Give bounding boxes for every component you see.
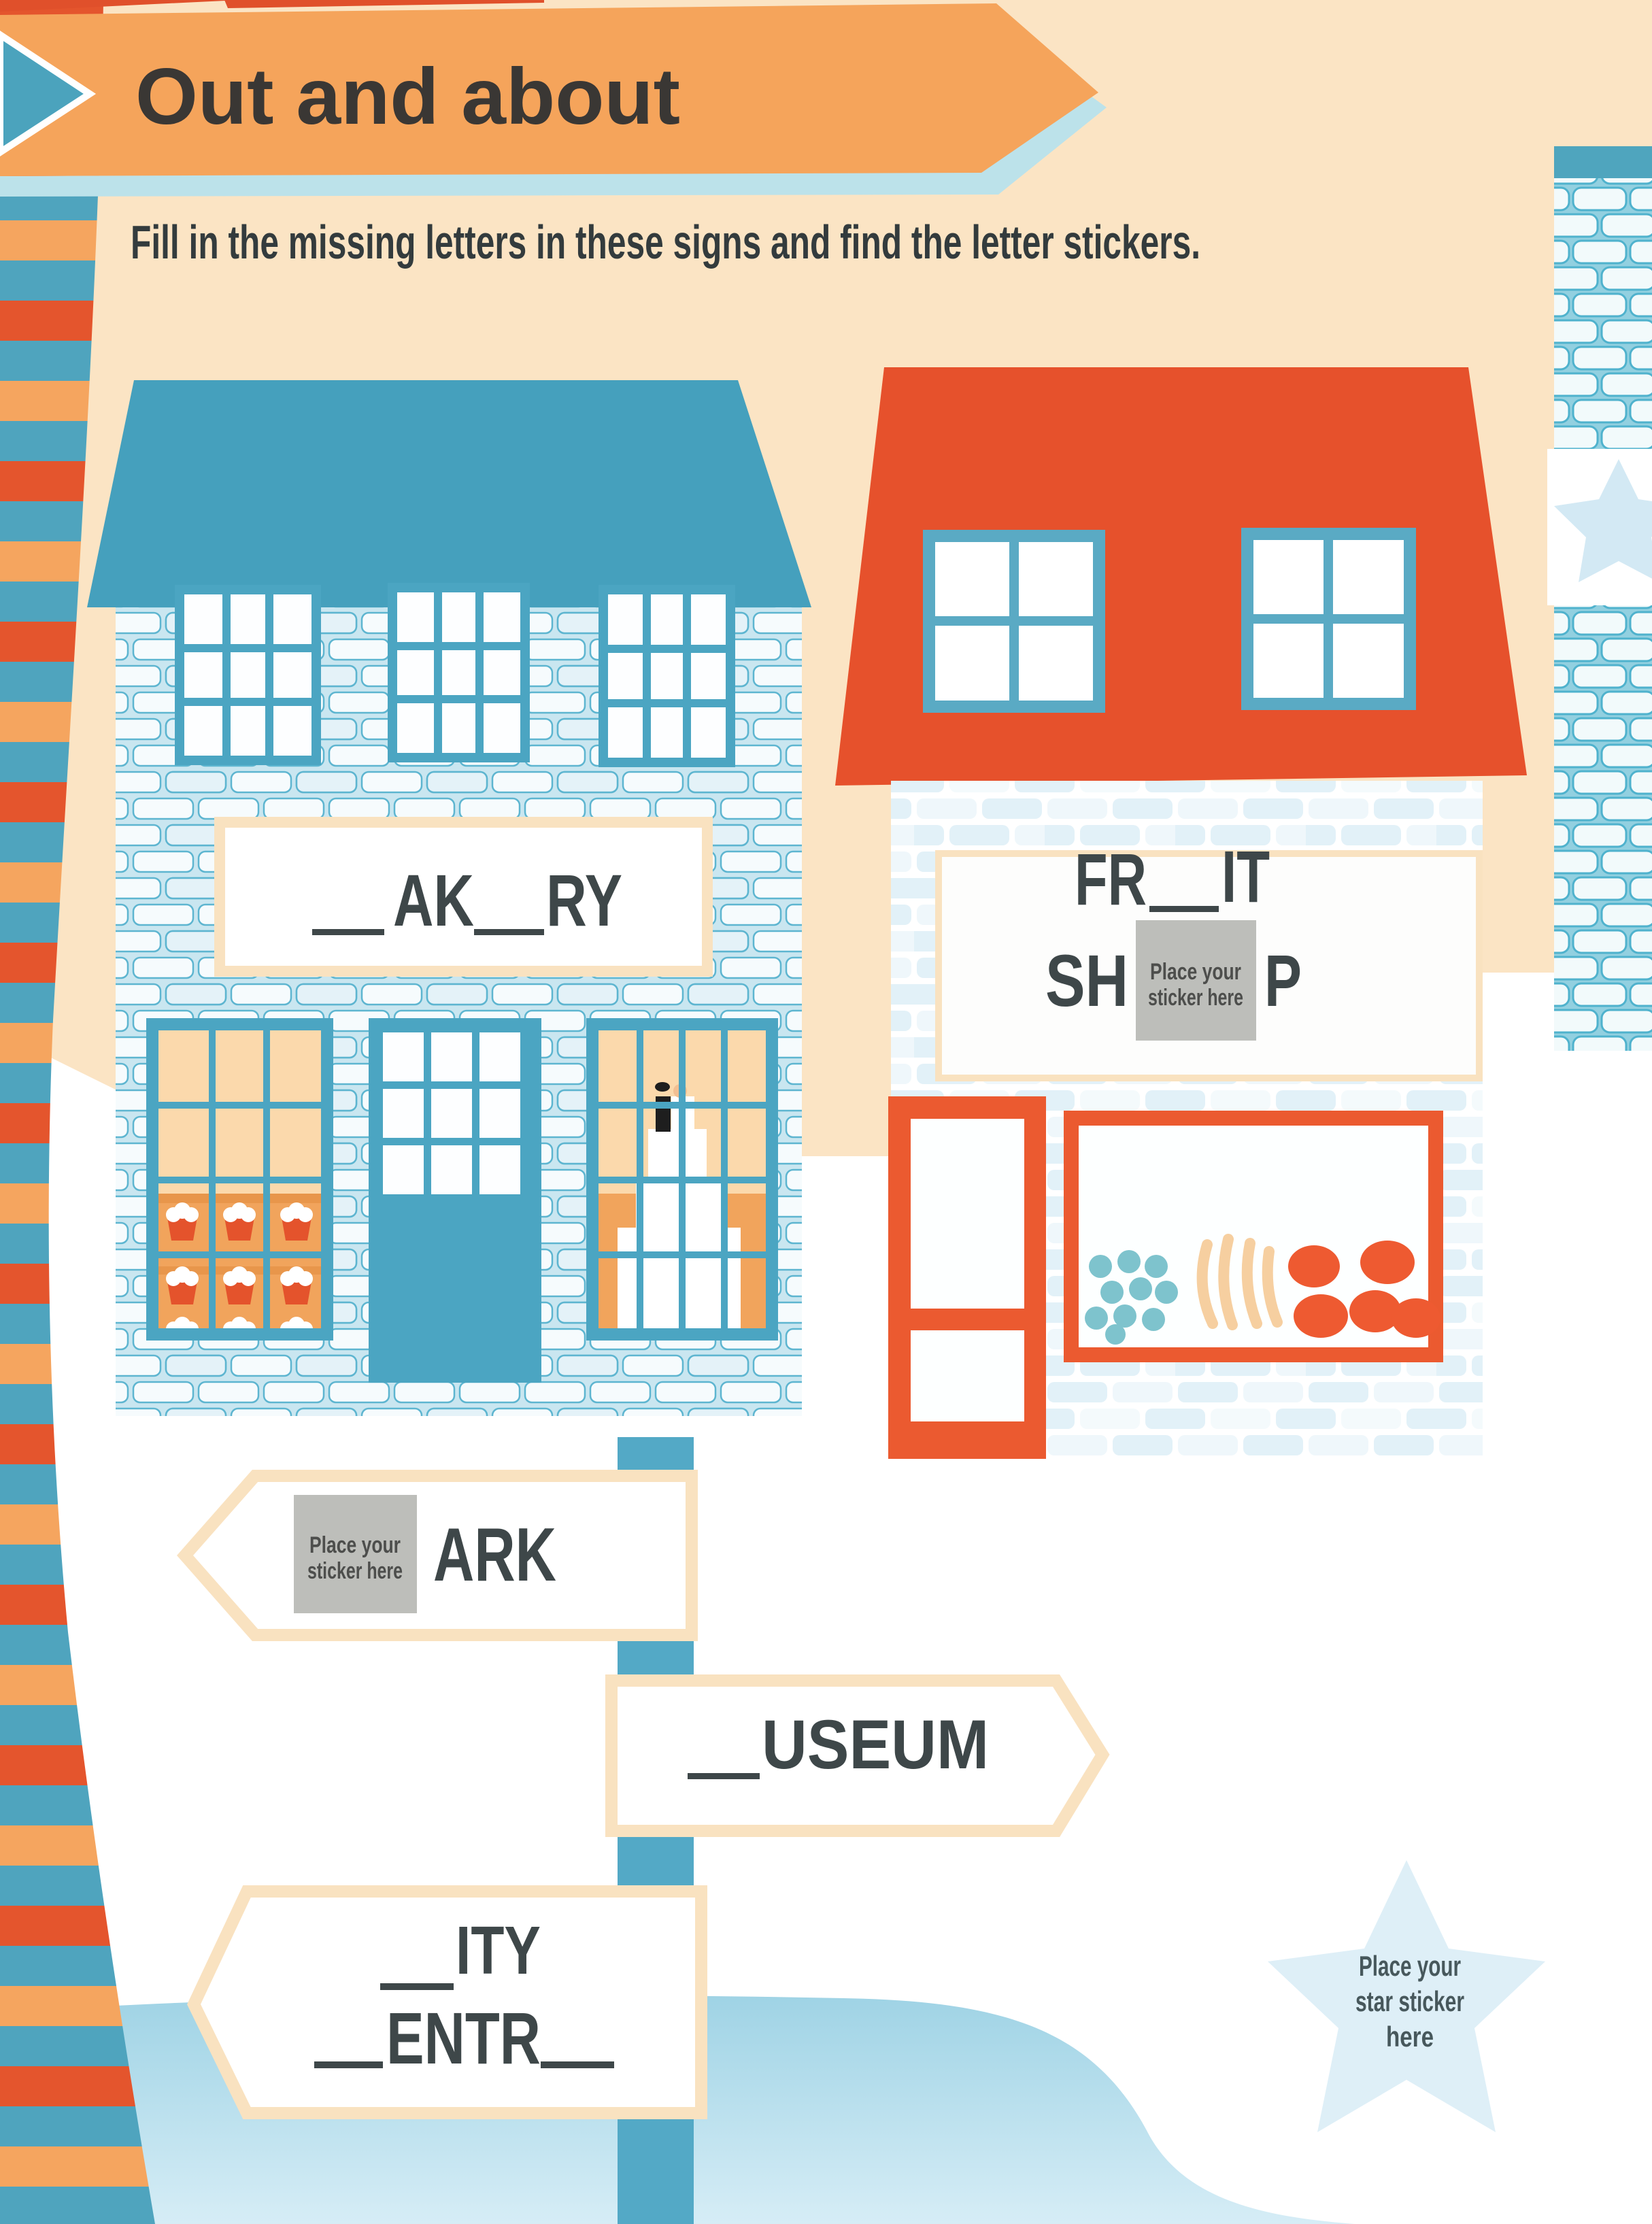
svg-text:Out and about: Out and about [135, 52, 680, 141]
svg-text:Place your: Place your [309, 1532, 401, 1558]
svg-text:ITY: ITY [456, 1913, 541, 1989]
svg-text:Place your: Place your [1150, 959, 1241, 985]
svg-text:sticker here: sticker here [307, 1558, 403, 1584]
svg-text:FR: FR [1075, 838, 1147, 920]
svg-text:P: P [1264, 939, 1302, 1022]
svg-text:SH: SH [1045, 939, 1128, 1022]
svg-text:ARK: ARK [433, 1513, 556, 1597]
svg-text:sticker here: sticker here [1148, 985, 1243, 1011]
svg-text:USEUM: USEUM [762, 1706, 989, 1783]
svg-text:ENTR: ENTR [386, 1997, 541, 2079]
svg-text:IT: IT [1221, 835, 1270, 917]
svg-text:Place your: Place your [1359, 1950, 1461, 1982]
svg-text:RY: RY [546, 859, 622, 941]
svg-text:star sticker: star sticker [1355, 1985, 1464, 2017]
svg-text:here: here [1386, 2021, 1434, 2053]
svg-text:AK: AK [393, 859, 474, 941]
svg-text:Fill in the missing letters in: Fill in the missing letters in these sig… [131, 216, 1200, 269]
